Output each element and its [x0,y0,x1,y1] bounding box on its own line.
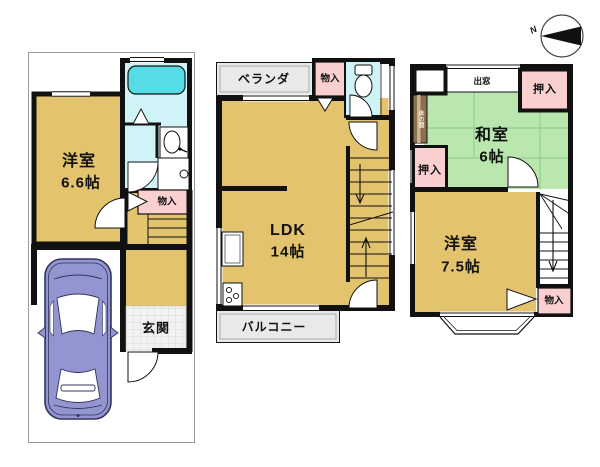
f3-storage-label: 物入 [544,296,563,306]
floor3-plan [410,64,574,335]
floor1-plan [29,53,195,443]
kitchen-stove [223,283,242,306]
f3-stairs [540,233,571,278]
f1-room-size-label: 6.6帖 [61,176,101,191]
f3-alcove [415,69,446,94]
f1-room-name-label: 洋室 [62,154,96,170]
f2-veranda-label: ベランダ [238,73,290,85]
bathtub [128,66,185,94]
f3-washitsu-size-label: 6帖 [479,150,504,165]
f1-entrance-label: 玄関 [142,322,170,335]
car-top-view [38,259,118,419]
f3-closet-left-label: 押入 [418,166,442,177]
floorplan-page: 洋室 6.6帖 物入 玄関 ベランダ 物入 LDK 14帖 バルコニー 押入 出… [0,0,600,467]
entrance-door-arc [128,352,158,382]
f3-bay-window-bottom [440,317,534,334]
car-windshield [57,294,99,334]
f3-closet-top-label: 押入 [533,85,557,96]
f3-stairs-winders [540,194,571,229]
f3-youshitsu-size-label: 7.5帖 [441,260,481,275]
toilet-bowl [355,75,372,97]
f2-balcony-label: バルコニー [242,321,307,333]
car-rear-window [56,369,100,403]
f2-ldk-name-label: LDK [270,223,306,239]
f3-tokonoma-label: 床の間 [417,110,423,128]
f3-bay-window-label: 出窓 [473,77,490,86]
f2-ldk-size-label: 14帖 [271,245,306,260]
f2-storage-label: 物入 [320,74,339,84]
washbasin-bowl [164,131,180,153]
toilet-tank [355,65,372,75]
f3-washitsu-name-label: 和室 [475,128,509,144]
floor2-plan [216,58,396,343]
car-mirror-left [38,327,46,338]
f1-storage-label: 物入 [157,197,176,207]
f3-youshitsu-name-label: 洋室 [444,237,478,253]
car-mirror-right [111,327,119,338]
compass-icon [541,15,583,57]
f1-wall [31,244,192,250]
f1-wall-stub [31,250,37,305]
